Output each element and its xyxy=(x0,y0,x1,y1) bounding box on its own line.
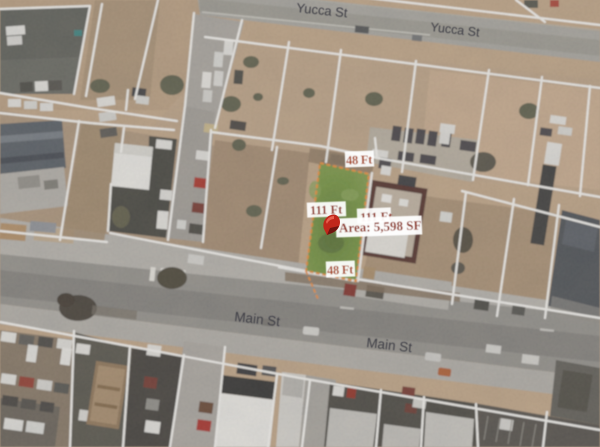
svg-text:111 Ft: 111 Ft xyxy=(310,202,344,217)
svg-text:Area: 5,598 SF: Area: 5,598 SF xyxy=(339,218,422,236)
svg-text:48 Ft: 48 Ft xyxy=(346,153,374,168)
svg-text:48 Ft: 48 Ft xyxy=(327,263,355,278)
